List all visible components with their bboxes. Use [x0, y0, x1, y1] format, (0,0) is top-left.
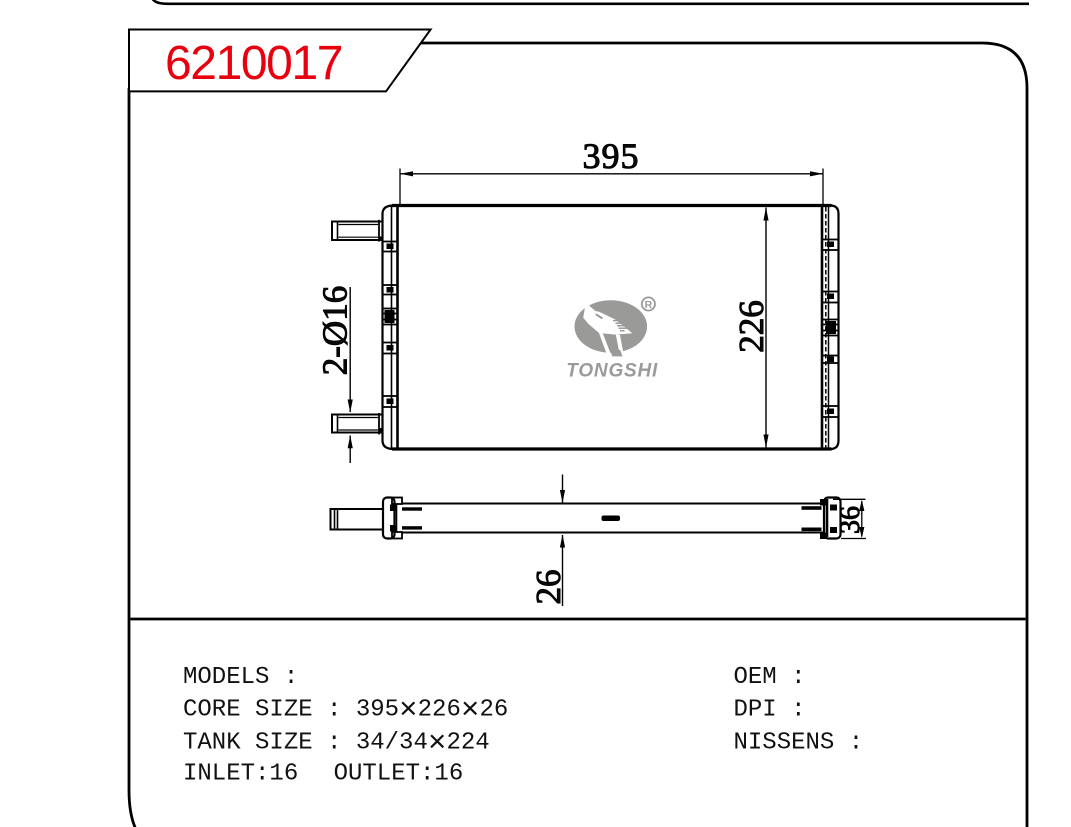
- svg-text:R: R: [645, 299, 653, 311]
- svg-text:INLET:16: INLET:16: [183, 761, 298, 788]
- svg-text:CORE SIZE : 395×226×26: CORE SIZE : 395×226×26: [183, 694, 508, 729]
- svg-text:226: 226: [732, 300, 771, 353]
- svg-text:OUTLET:16: OUTLET:16: [334, 761, 464, 788]
- svg-text:26: 26: [529, 570, 568, 605]
- svg-text:2-Ø16: 2-Ø16: [315, 286, 354, 375]
- svg-text:DPI :: DPI :: [734, 697, 806, 724]
- svg-text:36: 36: [835, 506, 866, 534]
- svg-text:OEM :: OEM :: [734, 664, 806, 691]
- svg-text:TANK SIZE : 34/34×224: TANK SIZE : 34/34×224: [183, 726, 490, 761]
- svg-text:TONGSHI: TONGSHI: [566, 361, 658, 382]
- svg-text:6210017: 6210017: [165, 37, 342, 90]
- svg-text:MODELS :: MODELS :: [183, 664, 298, 691]
- svg-text:NISSENS :: NISSENS :: [734, 729, 864, 756]
- svg-text:395: 395: [583, 136, 640, 176]
